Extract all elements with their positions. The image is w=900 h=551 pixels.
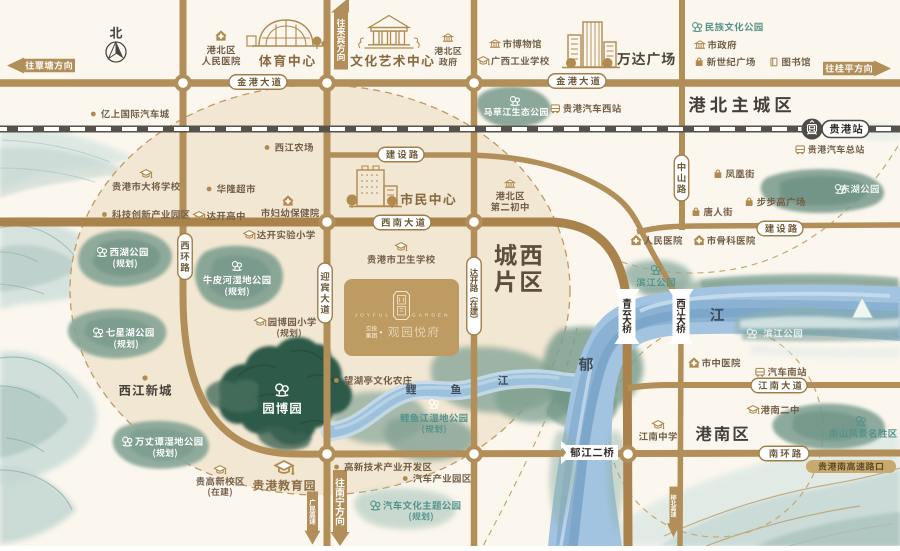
svg-text:GARDEN: GARDEN: [412, 313, 451, 319]
svg-text:JOYFUL: JOYFUL: [355, 313, 391, 319]
